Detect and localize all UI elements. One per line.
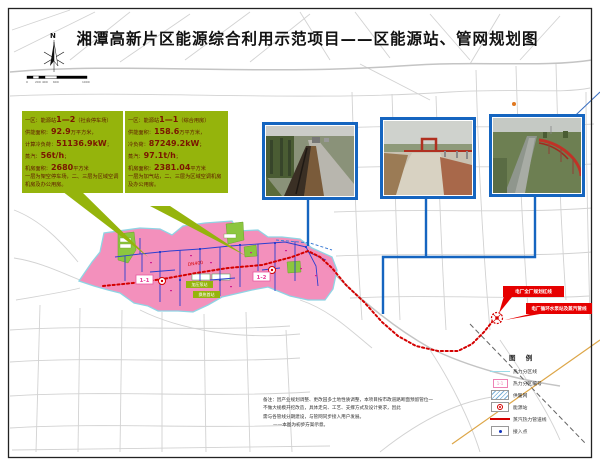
- callout-line: 机房面积：2680平方米: [25, 162, 120, 174]
- legend-item-zone-line: 热力分区线: [487, 365, 593, 377]
- callout-line: 计算冷负荷：51136.9kW；: [25, 138, 120, 150]
- access-point-icon: [499, 430, 502, 433]
- legend-item-heating-net: 供暖网: [487, 389, 593, 401]
- callout-line: 一层为加气站，二、三层为区域空调机房及办公用房。: [128, 174, 225, 190]
- callout-line: 一区：能源站1—1（综合用房）: [128, 114, 225, 126]
- pump-station-chip: 加压泵站: [186, 281, 213, 288]
- access-point-swatch: [487, 426, 513, 436]
- red-label1-tail: [499, 296, 512, 313]
- note-line: 需与各管线分期建设，与管网同步接入用户发展。: [263, 414, 441, 422]
- zone-number-swatch: 1-1: [487, 379, 513, 388]
- page-title: 湘潭高新片区能源综合利用示范项目——区能源站、管网规划图: [55, 27, 560, 49]
- legend-label: 热力分区线: [513, 368, 537, 375]
- scale-bar-labels: 0 200 400 600 1000: [26, 80, 90, 84]
- zone-line-swatch: [487, 371, 513, 372]
- svg-text:600: 600: [53, 80, 59, 84]
- energy-station-swatch: [487, 402, 513, 412]
- legend-title: 图 例: [487, 352, 593, 362]
- energy-station-1-1-callout: 一区：能源站1—1（综合用房） 供能面积：158.6万平方米， 冷负荷：8724…: [125, 111, 228, 193]
- legend-item-energy-station: 能源站: [487, 401, 593, 413]
- major-roads: [10, 60, 592, 386]
- note-line: 备注：因产业规划调整、更改园多土地性质调整，本项目按市政道路断面预留管位一: [263, 397, 441, 405]
- plant-connection-symbol: [492, 313, 503, 324]
- svg-text:0: 0: [26, 80, 28, 84]
- callout-line: 供能面积：158.6万平方米，: [128, 126, 225, 138]
- legend-label: 接入点: [513, 428, 527, 435]
- energy-station-1-2-callout: 一区：能源站1—2（社会停车场） 供能面积：92.9万平方米， 计算冷负荷：51…: [22, 111, 123, 193]
- legend-item-access-point: 接入点: [487, 425, 593, 437]
- callout-line: 一区：能源站1—2（社会停车场）: [25, 114, 120, 126]
- photo-elevated-image: [493, 118, 581, 193]
- heat-exchange-chip: 换热首站: [193, 291, 220, 298]
- plant-pump-station-label: 电厂循环水泵站及蒸汽管线: [526, 303, 592, 314]
- svg-text:1000: 1000: [82, 80, 90, 84]
- svg-text:400: 400: [42, 80, 48, 84]
- legend-label: 热力分区编号: [513, 380, 542, 387]
- plant-redline-label: 电厂全厂规划红线: [503, 286, 564, 297]
- callout-line: 一层为架空停车场，二、三层为区域空调机房及办公用房。: [25, 174, 120, 190]
- orange-marker: [512, 102, 516, 106]
- callout-line: 机房面积：2381.04平方米: [128, 162, 225, 174]
- photo-pipe-crossing: [380, 117, 476, 199]
- photo-pipe-trench: [262, 122, 358, 200]
- legend: 图 例 热力分区线 1-1 热力分区编号 供暖网 能源站 蒸汽热力管道线 接入点: [487, 352, 593, 437]
- station-ring-icon: [497, 404, 503, 410]
- legend-item-zone-number: 1-1 热力分区编号: [487, 377, 593, 389]
- legend-label: 能源站: [513, 404, 527, 411]
- photo-crossing-image: [384, 121, 472, 195]
- steam-line-swatch: [487, 418, 513, 420]
- scale-bar: [27, 76, 87, 79]
- zone-label-1-1: 1-1: [140, 278, 150, 284]
- legend-label: 供暖网: [513, 392, 527, 399]
- callout-line: 供能面积：92.9万平方米，: [25, 126, 120, 138]
- zone-label-1-2: 1-2: [257, 275, 267, 281]
- planning-map-page: 1-1 1-2 DN400 N 0 200 400 600 1000: [0, 0, 600, 466]
- photo-trench-image: [266, 126, 354, 196]
- legend-label: 蒸汽热力管道线: [513, 416, 547, 423]
- map-notes: 备注：因产业规划调整、更改园多土地性质调整，本项目按市政道路断面预留管位一 不做…: [263, 397, 441, 430]
- callout-line: 蒸汽：97.1t/h；: [128, 150, 225, 162]
- photo-elevated-pipeline: [489, 114, 585, 197]
- callout-line: 冷负荷：87249.2kW；: [128, 138, 225, 150]
- note-line: 不做大规模开挖改造，具体走向、工艺、支撑方式及设计要求，因此: [263, 405, 441, 413]
- note-line: ——本图为初步方案示意。: [263, 422, 441, 430]
- heating-net-swatch: [487, 390, 513, 400]
- callout-line: 蒸汽：56t/h；: [25, 150, 120, 162]
- svg-text:200: 200: [35, 80, 41, 84]
- legend-item-steam-line: 蒸汽热力管道线: [487, 413, 593, 425]
- red-label2-tail: [505, 314, 540, 320]
